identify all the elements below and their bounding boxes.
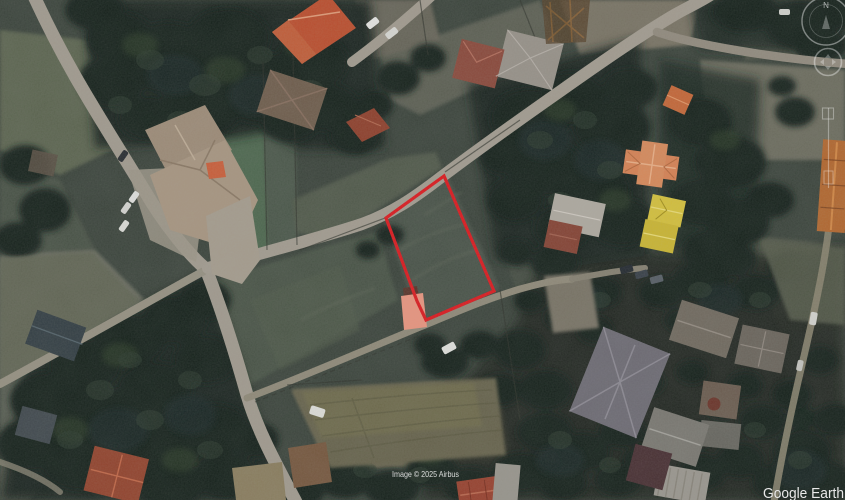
svg-text:Image © 2025 Airbus: Image © 2025 Airbus	[392, 469, 459, 479]
svg-text:Google Earth: Google Earth	[763, 485, 844, 500]
svg-text:N: N	[823, 1, 829, 10]
